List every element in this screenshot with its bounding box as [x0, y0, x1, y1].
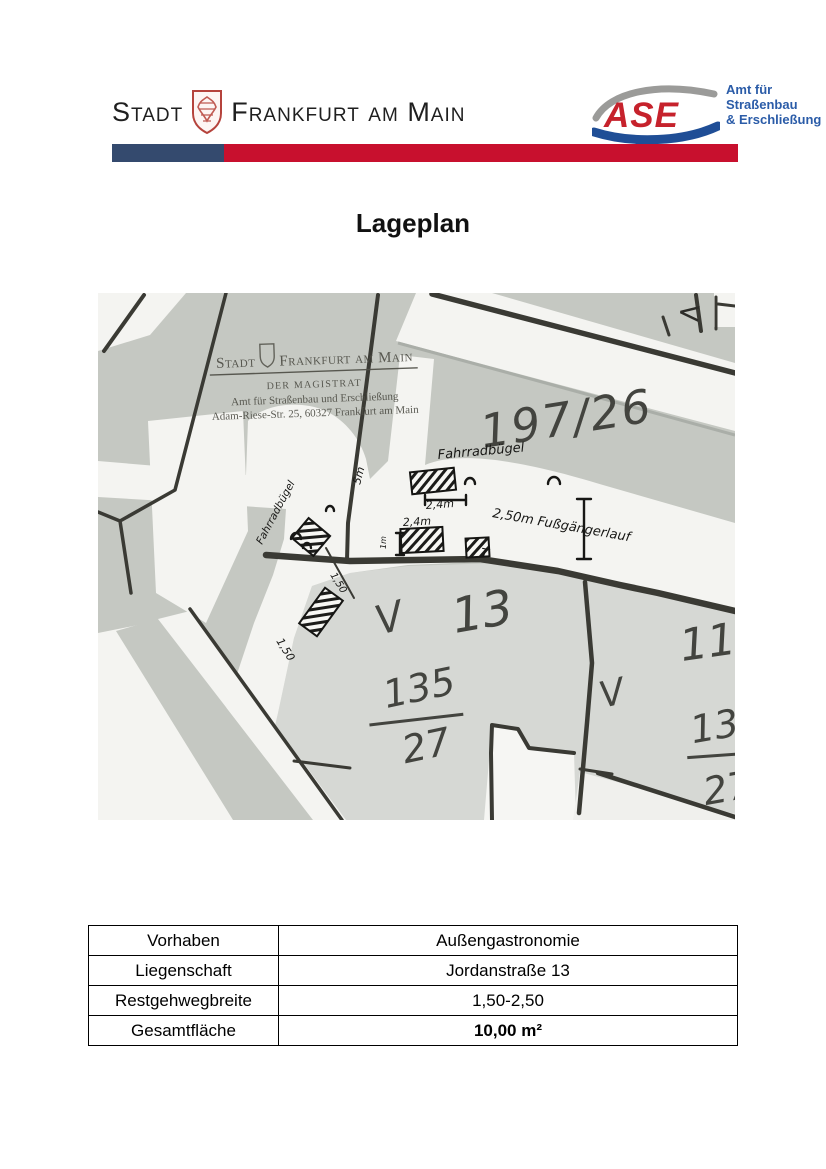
header-bar-blue — [112, 144, 224, 162]
flur-13-right: 13 — [687, 701, 735, 753]
ase-line-3: & Erschließung — [726, 112, 821, 127]
frankfurt-eagle-crest-icon — [190, 89, 224, 135]
project-table: Vorhaben Außengastronomie Liegenschaft J… — [88, 925, 738, 1046]
row-value: Jordanstraße 13 — [279, 956, 738, 986]
header-color-bar — [112, 144, 738, 162]
table-row: Liegenschaft Jordanstraße 13 — [89, 956, 738, 986]
hatched-area-top — [410, 468, 456, 494]
ase-line-2: Straßenbau — [726, 97, 821, 112]
logo-word-frankfurt-am-main: Frankfurt am Main — [231, 97, 465, 128]
table-row: Restgehwegbreite 1,50-2,50 — [89, 986, 738, 1016]
site-plan-map: Stadt Frankfurt am Main DER MAGISTRAT Am… — [98, 293, 735, 820]
table-row: Vorhaben Außengastronomie — [89, 926, 738, 956]
table-row: Gesamtfläche 10,00 m² — [89, 1016, 738, 1046]
row-label: Liegenschaft — [89, 956, 279, 986]
row-value: 10,00 m² — [279, 1016, 738, 1046]
annotation-width-24-top: 2,4m — [425, 497, 454, 512]
ase-line-1: Amt für — [726, 82, 821, 97]
hatched-area-center — [400, 527, 443, 553]
stamp-stadt: Stadt — [216, 354, 256, 371]
flur-27-right: 27 — [700, 762, 735, 814]
row-label: Vorhaben — [89, 926, 279, 956]
house-number-13: 13 — [447, 579, 517, 645]
row-label: Gesamtfläche — [89, 1016, 279, 1046]
ase-logo: ASE Amt für Straßenbau & Erschließung — [592, 82, 821, 144]
svg-text:ASE: ASE — [603, 96, 680, 135]
house-number-11: 11 — [676, 614, 735, 672]
annotation-width-24-bottom: 2,4m — [402, 515, 431, 529]
row-value: 1,50-2,50 — [279, 986, 738, 1016]
annotation-depth-1m: 1m — [379, 536, 388, 549]
logo-word-stadt: Stadt — [112, 97, 183, 128]
stadt-frankfurt-logo: Stadt Frankfurt am Main — [112, 86, 465, 138]
row-value: Außengastronomie — [279, 926, 738, 956]
header-bar-red — [224, 144, 738, 162]
document-page: Stadt Frankfurt am Main ASE Amt für Stra… — [0, 0, 826, 1169]
passage-arrow: < — [675, 294, 704, 331]
row-label: Restgehwegbreite — [89, 986, 279, 1016]
ase-swoosh-icon: ASE — [592, 82, 720, 144]
page-title: Lageplan — [0, 208, 826, 239]
